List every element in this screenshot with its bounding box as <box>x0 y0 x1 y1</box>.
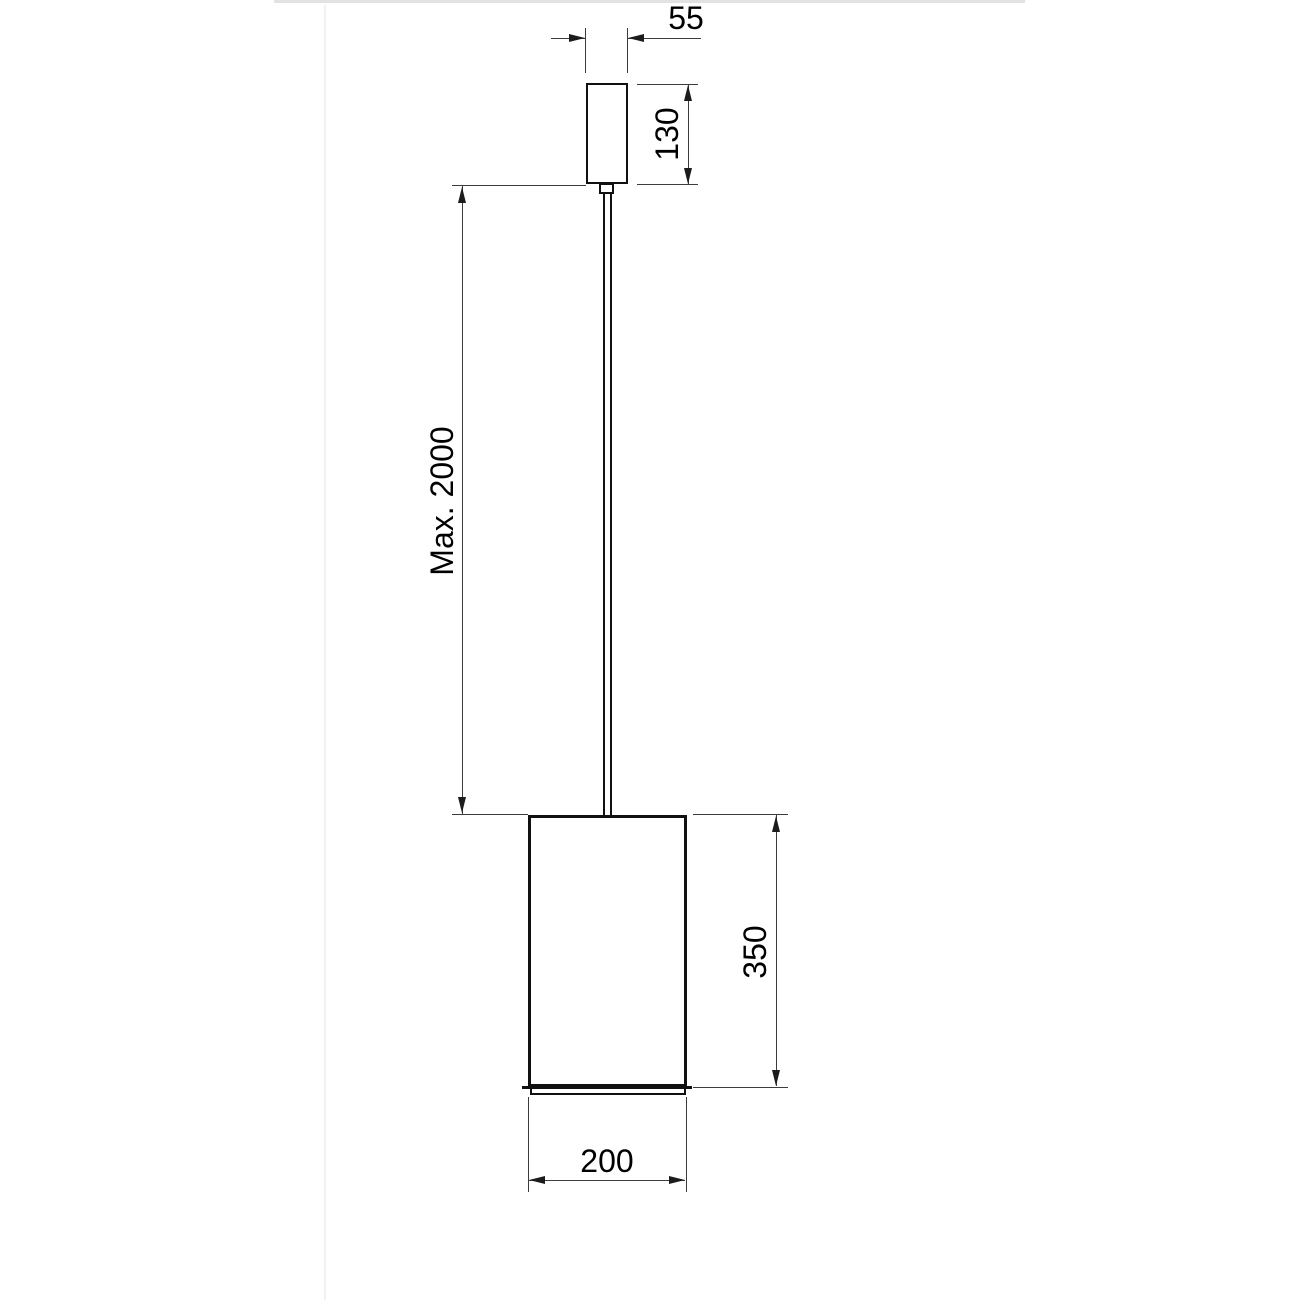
arrow-right-icon <box>669 1176 685 1184</box>
arrow-up-icon <box>458 187 466 203</box>
arrow-up-icon <box>684 85 692 101</box>
ext-line-shade-diameter-right <box>686 1097 688 1192</box>
page-top-divider <box>274 0 1025 3</box>
ext-line-shade-height-bottom <box>693 1087 788 1089</box>
ext-line-cable-bottom <box>452 814 528 816</box>
dim-canopy-width-label: 55 <box>668 2 704 34</box>
arrow-down-icon <box>684 168 692 184</box>
dim-canopy-height-label: 130 <box>651 107 683 160</box>
arrow-left-icon <box>628 34 644 42</box>
arrow-up-icon <box>772 816 780 832</box>
ext-line-cable-top <box>452 185 586 187</box>
drawing-canvas: 55 130 Max. 2000 350 200 <box>0 0 1300 1300</box>
arrow-down-icon <box>458 797 466 813</box>
arrow-left-icon <box>529 1176 545 1184</box>
dim-shade-diameter-label: 200 <box>580 1145 633 1177</box>
dim-cable-length-label: Max. 2000 <box>426 426 458 575</box>
suspension-cable <box>603 193 612 815</box>
dim-line-shade-diameter <box>529 1180 685 1182</box>
dim-shade-height-label: 350 <box>739 925 771 978</box>
page-left-divider <box>324 5 326 1300</box>
arrow-down-icon <box>772 1070 780 1086</box>
ceiling-canopy <box>586 83 628 184</box>
arrow-right-icon <box>569 34 585 42</box>
shade-bottom-diffuser <box>530 1089 686 1095</box>
dim-line-shade-height <box>776 815 778 1086</box>
cylindrical-shade <box>528 815 687 1087</box>
ext-line-shade-height-top <box>693 814 788 816</box>
dim-line-cable-length <box>462 186 464 814</box>
